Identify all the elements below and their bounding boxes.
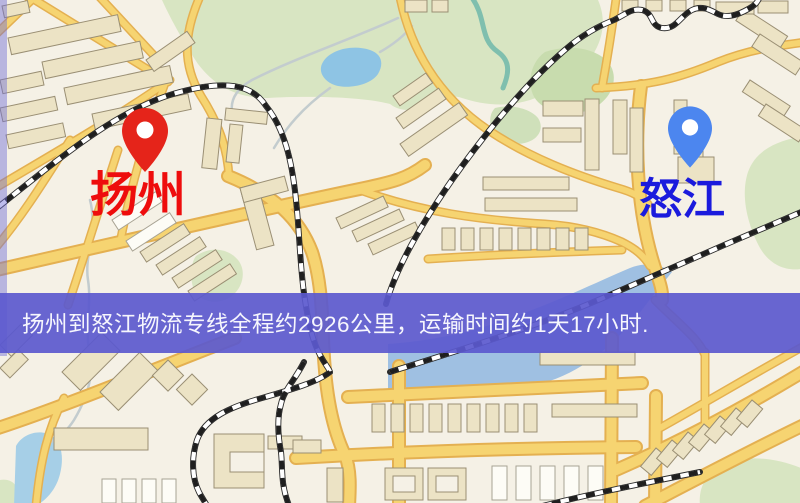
origin-pin-hole [137,122,154,139]
origin-pin-shape [122,108,168,172]
origin-label: 扬州 [90,172,186,220]
route-info-text: 扬州到怒江物流专线全程约2926公里，运输时间约1天17小时. [0,307,649,339]
destination-pin-hole [682,119,698,135]
route-info-banner: 扬州到怒江物流专线全程约2926公里，运输时间约1天17小时. [0,293,800,353]
origin-pin-icon [122,108,168,172]
destination-pin-shape [668,106,712,167]
map-screenshot: 扬州 怒江 扬州到怒江物流专线全程约2926公里，运输时间约1天17小时. [0,0,800,503]
map-canvas [0,0,800,503]
destination-pin-icon [668,106,712,168]
destination-label: 怒江 [639,179,725,222]
